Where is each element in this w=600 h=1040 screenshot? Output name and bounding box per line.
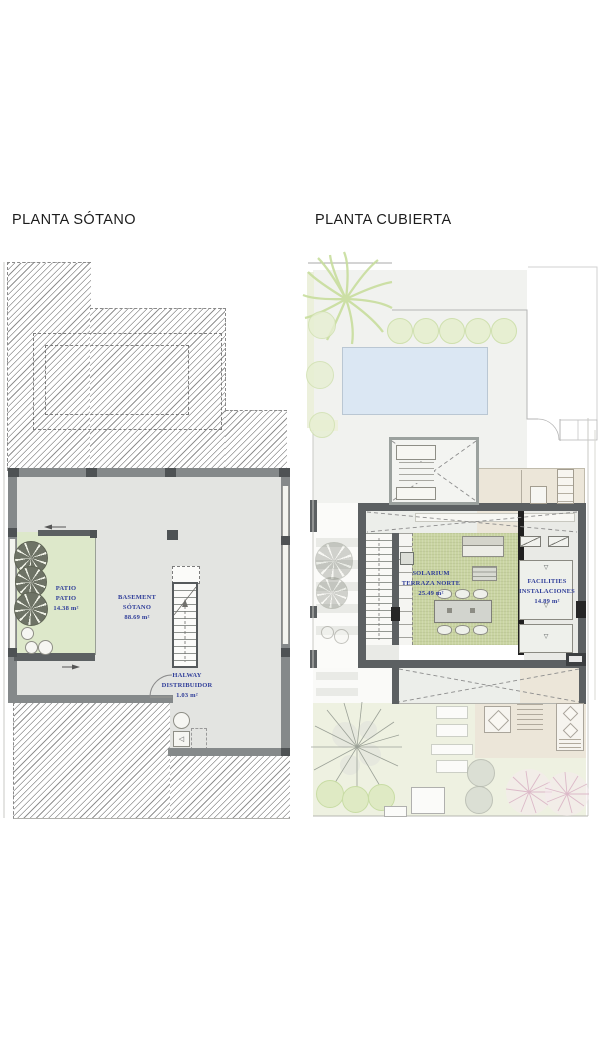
chair <box>473 625 488 635</box>
stepping-stone <box>431 744 473 755</box>
column <box>281 748 290 756</box>
ghost-bistro-table <box>334 629 349 644</box>
coffee-table <box>472 566 497 581</box>
stepping-stone <box>436 760 468 773</box>
stair-landing <box>366 645 399 660</box>
roof-staircase <box>366 533 392 645</box>
dashed-reserve-box <box>191 728 207 750</box>
garden-bench <box>384 806 407 817</box>
skylight-steps <box>399 462 434 483</box>
ghost-tree <box>315 542 353 580</box>
ghost-bistro-chair <box>321 626 334 639</box>
garden-bush <box>342 786 369 813</box>
vent-triangle-icon: ▽ <box>540 565 552 571</box>
roof-wall-bottom <box>358 660 586 668</box>
column <box>8 468 19 477</box>
terrace-divider-line <box>521 470 522 505</box>
lower-roof-beige <box>520 668 579 703</box>
basement-label: BASEMENTSÓTANO88.69 m² <box>99 593 175 623</box>
unit-lines <box>559 739 581 748</box>
threshold-marker-inner <box>569 656 582 662</box>
table-detail <box>470 608 475 613</box>
stepping-stone <box>436 706 468 719</box>
chair <box>437 625 452 635</box>
gray-bush <box>467 759 495 787</box>
hedge-bush <box>308 311 336 339</box>
water-tank-fixture <box>173 712 190 729</box>
sun-lounger <box>396 487 436 500</box>
hatch-area-bottom-right <box>170 756 290 819</box>
floorplan-sheet: PLANTA SÓTANO PLANTA CUBIERTA ◁ P <box>0 0 600 1040</box>
sun-lounger <box>396 445 436 460</box>
terrace-furniture <box>530 486 547 504</box>
hatch-area-top-right <box>225 410 287 471</box>
hallway-label: HALWAYDISTRIBUIDOR1.03 m² <box>149 671 225 701</box>
dashed-outline-inner <box>45 345 189 415</box>
pergola-slat <box>316 672 358 680</box>
ghost-tree <box>316 577 348 609</box>
window-right <box>282 486 289 644</box>
hedge-bush <box>387 318 413 344</box>
facilities-label: FACILITIESINSTALACIONES14.89 m² <box>517 577 577 607</box>
column <box>8 648 17 657</box>
stepping-stone <box>436 724 468 737</box>
column-free <box>167 530 178 540</box>
column <box>8 528 17 537</box>
wall-top <box>8 468 290 477</box>
terrace-louvres <box>517 704 543 734</box>
equipment-box-a: ◁ <box>173 731 190 747</box>
basement-staircase <box>172 582 198 668</box>
bistro-table <box>38 640 53 655</box>
garden-gate <box>411 787 445 814</box>
garden-bush <box>316 780 344 808</box>
terrace-shelf <box>557 469 574 504</box>
title-planta-cubierta: PLANTA CUBIERTA <box>315 212 452 228</box>
pool <box>342 347 488 415</box>
door-marker <box>391 607 400 621</box>
title-planta-sotano: PLANTA SÓTANO <box>12 212 136 228</box>
column <box>279 468 290 477</box>
sofa <box>462 536 504 557</box>
column <box>281 648 290 657</box>
roof-wall-left <box>358 503 366 668</box>
lower-roof-wall-left <box>392 668 399 704</box>
dining-table <box>434 600 492 623</box>
vent-box <box>548 536 569 547</box>
patio-wall-top <box>38 530 95 536</box>
bistro-chair <box>21 627 34 640</box>
hatch-area-bottom-left <box>13 703 171 819</box>
chair <box>455 625 470 635</box>
column <box>86 468 97 477</box>
vent-triangle-icon: ▽ <box>540 634 552 640</box>
patio-label: PATIOPATIO14.38 m² <box>28 584 104 614</box>
patio-corner-block <box>90 530 97 538</box>
wall-bottom-right <box>168 748 290 756</box>
pergola-slat <box>316 688 358 696</box>
column <box>165 468 176 477</box>
side-wall-block <box>310 500 317 532</box>
hedge-bush <box>309 412 335 438</box>
bistro-chair <box>25 641 38 654</box>
chair <box>473 589 488 599</box>
vent-box <box>520 536 541 547</box>
hedge-bush <box>491 318 517 344</box>
hedge-bush <box>306 361 334 389</box>
hedge-bush <box>465 318 491 344</box>
threshold-marker <box>566 653 586 666</box>
hedge-bush <box>413 318 439 344</box>
sofa-back <box>463 537 503 546</box>
side-wall-block <box>310 650 317 668</box>
gray-bush <box>465 786 493 814</box>
patio-wall-bottom <box>14 653 95 661</box>
outdoor-fixture <box>400 552 414 565</box>
side-wall-block <box>310 606 317 618</box>
roof-sill <box>415 513 575 522</box>
hedge-bush <box>439 318 465 344</box>
table-detail <box>447 608 452 613</box>
planter-strip <box>307 272 314 428</box>
column <box>281 536 290 545</box>
solarium-label: SOLARIUMTERRAZA NORTE25.49 m² <box>393 569 469 599</box>
roof-wall-right <box>578 503 586 668</box>
door-marker <box>576 601 586 618</box>
lower-roof-wall-right <box>579 668 586 704</box>
lower-roof <box>399 668 520 703</box>
